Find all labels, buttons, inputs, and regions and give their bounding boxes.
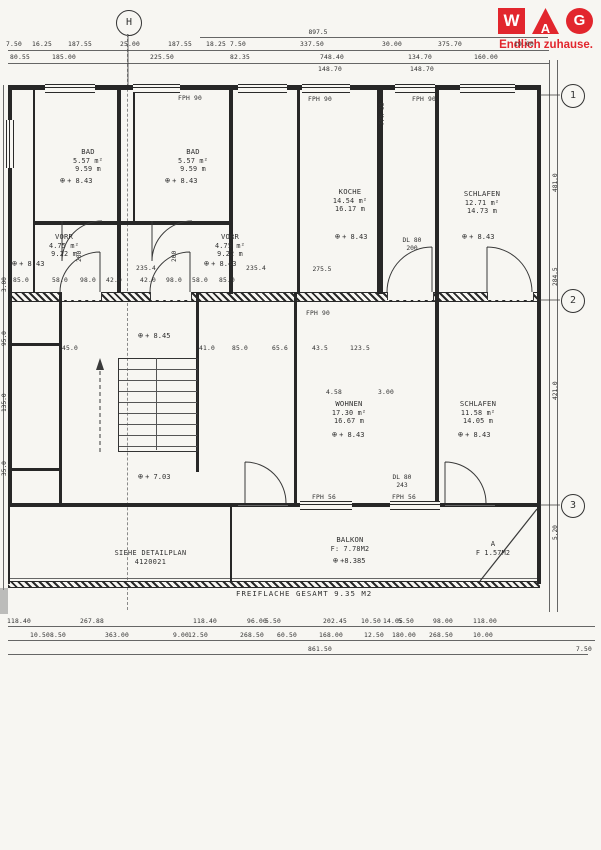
room-area: 4.75 m² (200, 242, 260, 250)
dimension-total: 897.5 (309, 29, 328, 36)
detail-plan-note-line1: SIEHE DETAILPLAN (88, 549, 213, 558)
elevation-marker-koche: ⊕+ 8.43 (335, 232, 367, 242)
dimension-value: 98.0 (166, 277, 182, 284)
freiflaeche-note: FREIFLACHE GESAMT 9.35 M2 (236, 589, 372, 598)
dimension-value: 235.4 (246, 265, 266, 272)
room-area: 4.75 m² (34, 242, 94, 250)
room-area: F: 7.78M2 (310, 545, 390, 553)
window (133, 84, 180, 93)
level-icon: ⊕ (458, 430, 463, 440)
window-tag-fph90-vertical: FPH 90 (379, 103, 386, 125)
window-tag-fph90: FPH 90 (412, 96, 436, 103)
wall-bad-divider (117, 85, 121, 293)
wall-wohnen-left (294, 292, 297, 505)
room-label-schlafen-top: SCHLAFEN 12.71 m² 14.73 m (446, 190, 518, 215)
dim-row-bottom-2: 10.508.50363.009.0012.50268.5060.50168.0… (0, 632, 601, 641)
dim-row-top-1: 7.5016.25187.5525.00187.5518.257.50337.5… (0, 41, 601, 50)
dimension-value: 118.40 (193, 618, 217, 625)
dimension-value: 268.50 (240, 632, 264, 639)
level-value: + 8.43 (339, 431, 364, 439)
elevation-marker-bad-left: ⊕+ 8.43 (60, 176, 92, 186)
room-name: WOHNEN (313, 400, 385, 409)
dimension-value: 4.58 (326, 389, 342, 396)
floor-plan-sheet: W A G Endlich zuhause. H 1 2 3 897.5 7.5… (0, 0, 601, 850)
elevation-marker-bad-right: ⊕+ 8.43 (165, 176, 197, 186)
door-height-tag: 200 (76, 251, 83, 262)
dimension-value: 82.35 (230, 54, 250, 61)
dimension-value: 12.50 (188, 632, 208, 639)
elevation-marker-balkon: ⊕+8.385 (333, 556, 365, 566)
room-area: F 1.57M2 (468, 549, 518, 557)
door-opening (487, 292, 534, 300)
room-area: 5.57 m² (52, 157, 124, 165)
dimension-value: 160.00 (474, 54, 498, 61)
balcony-door-sill (238, 505, 288, 506)
wall-stair-left (59, 292, 62, 507)
dim-row-top-3: 148.70148.70 (0, 66, 601, 75)
room-name: SCHLAFEN (446, 190, 518, 199)
dimension-value: 134.70 (408, 54, 432, 61)
dimension-value: 168.00 (319, 632, 343, 639)
level-icon: ⊕ (138, 472, 143, 482)
room-label-balkon: BALKON F: 7.78M2 (310, 536, 390, 553)
elevation-marker-wohnen: ⊕+ 8.43 (332, 430, 364, 440)
room-name: KOCHE (310, 188, 390, 197)
room-label-wohnen: WOHNEN 17.30 m² 16.67 m (313, 400, 385, 425)
elevation-marker-schlafen-top: ⊕+ 8.43 (462, 232, 494, 242)
room-perimeter: 16.67 m (313, 417, 385, 425)
logo-letter-w: W (498, 8, 525, 34)
dimension-value: 25.00 (120, 41, 140, 48)
room-label-koche: KOCHE 14.54 m² 16.17 m (310, 188, 390, 213)
elevation-marker-stair-upper: ⊕+ 8.45 (138, 331, 170, 341)
room-perimeter: 9.22 m (34, 250, 94, 258)
dimension-value: 187.55 (168, 41, 192, 48)
scan-artifact (0, 588, 8, 614)
detail-plan-note: SIEHE DETAILPLAN 4120021 (88, 549, 213, 567)
dimension-value: 118.00 (473, 618, 497, 625)
grid-axis-centerline (127, 34, 128, 610)
dimension-value: 337.50 (300, 41, 324, 48)
dimension-value: 12.50 (364, 632, 384, 639)
balcony-window (300, 501, 352, 510)
window (395, 84, 435, 93)
door-tag-fph56: FPH 56 (312, 494, 336, 501)
dim-line (8, 50, 549, 51)
balcony-parapet (8, 581, 540, 588)
room-perimeter: 14.73 m (446, 207, 518, 215)
room-perimeter: 14.05 m (442, 417, 514, 425)
dimension-value: 95.0 (1, 331, 8, 346)
dimension-value: 8.50 (50, 632, 66, 639)
room-area: 11.58 m² (442, 409, 514, 417)
room-perimeter: 9.59 m (157, 165, 229, 173)
level-icon: ⊕ (333, 556, 338, 566)
dimension-value: 10.50 (30, 632, 50, 639)
level-icon: ⊕ (165, 176, 170, 186)
dimension-value: 180.00 (392, 632, 416, 639)
dimension-value: 58.0 (192, 277, 208, 284)
dimension-value: 861.50 (308, 646, 332, 653)
door-tag-dl80-200: DL 80 200 (398, 237, 426, 253)
dimension-value: 80.55 (10, 54, 30, 61)
door-swing-overlay (0, 0, 601, 850)
door-height-tag: 200 (171, 251, 178, 262)
door-arc-balcony-schlafen (445, 462, 486, 503)
dimension-value: 65.6 (272, 345, 288, 352)
window-tag-fph90: FPH 90 (178, 95, 202, 102)
dimension-value: 85.0 (13, 277, 29, 284)
wall-left-cell-b (8, 468, 60, 471)
room-area: 17.30 m² (313, 409, 385, 417)
room-label-abstell: A F 1.57M2 (468, 540, 518, 557)
dimension-value: 225.50 (150, 54, 174, 61)
room-name: VORR (34, 233, 94, 242)
level-value: + 7.03 (145, 473, 170, 481)
room-name: A (468, 540, 518, 549)
door-width: 243 (388, 482, 416, 490)
dimension-value: 185.00 (52, 54, 76, 61)
dim-row-bottom-3: 861.507.50 (0, 646, 601, 655)
dimension-value: 42.0 (106, 277, 122, 284)
wall-schlafen-left (435, 85, 439, 505)
wall-bad-right-inner (133, 85, 135, 223)
window (238, 84, 287, 93)
wag-logo: W A G (498, 8, 593, 34)
room-perimeter: 16.17 m (310, 205, 390, 213)
window-tag-fph90: FPH 90 (308, 96, 332, 103)
window-left-wall (6, 120, 14, 168)
room-name: BAD (157, 148, 229, 157)
detail-plan-note-line2: 4120021 (88, 558, 213, 567)
dimension-value: 9.00 (173, 632, 189, 639)
level-icon: ⊕ (332, 430, 337, 440)
dimension-value: 45.0 (62, 345, 78, 352)
level-value: + 8.45 (145, 332, 170, 340)
wall-balcony-left (8, 507, 10, 584)
dimension-value: 187.55 (68, 41, 92, 48)
room-name: BALKON (310, 536, 390, 545)
dimension-value: 60.50 (277, 632, 297, 639)
dimension-value: 148.70 (318, 66, 342, 73)
room-label-vorr-left: VORR 4.75 m² 9.22 m (34, 233, 94, 258)
room-label-bad-right: BAD 5.57 m² 9.59 m (157, 148, 229, 173)
dimension-value: 748.40 (320, 54, 344, 61)
dimension-value: 7.50 (576, 646, 592, 653)
grid-axis-marker-3: 3 (561, 494, 585, 518)
dimension-value: 267.88 (80, 618, 104, 625)
staircase-midline (156, 358, 157, 450)
dimension-value: 58.0 (52, 277, 68, 284)
room-perimeter: 9.59 m (52, 165, 124, 173)
door-opening (387, 292, 434, 300)
dimension-value: 235.4 (136, 265, 156, 272)
dimension-value: 98.0 (80, 277, 96, 284)
dim-line-right (549, 60, 550, 612)
level-value: +8.385 (340, 557, 365, 565)
room-label-vorr-right: VORR 4.75 m² 9.22 m (200, 233, 260, 258)
dimension-value: 10.50 (361, 618, 381, 625)
door-tag-fph56: FPH 56 (392, 494, 416, 501)
door-arc-balcony-wohnen (245, 462, 286, 503)
dimension-value: 5.50 (265, 618, 281, 625)
dim-row-vorr: 85.058.098.042.042.098.058.085.0 (0, 277, 601, 286)
dimension-koche-width: 275.5 (313, 266, 332, 273)
dimension-value: 5.50 (398, 618, 414, 625)
dim-row-top-2: 80.55185.00225.5082.35748.40134.70160.00 (0, 54, 601, 63)
grid-axis-marker-2: 2 (561, 289, 585, 313)
dimension-value: 96.00 (247, 618, 267, 625)
window (460, 84, 515, 93)
room-label-bad-left: BAD 5.57 m² 9.59 m (52, 148, 124, 173)
dimension-value: 43.5 (312, 345, 328, 352)
stair-direction-arrowhead (96, 358, 104, 370)
door-tag-dl80-243: DL 80 243 (388, 474, 416, 490)
window-tag-fph90: FPH 90 (306, 310, 330, 317)
balcony-door-sill (445, 505, 495, 506)
dimension-value: 202.45 (323, 618, 347, 625)
dim-row-bottom-1: 118.40267.88118.4096.005.50202.4510.5014… (0, 618, 601, 627)
wall-outer-right (537, 85, 541, 584)
level-icon: ⊕ (138, 331, 143, 341)
room-name: BAD (52, 148, 124, 157)
grid-axis-marker-1: 1 (561, 84, 585, 108)
dim-row-vorr-widths: 235.4235.4 (0, 265, 601, 274)
dim-line (8, 63, 549, 64)
room-area: 14.54 m² (310, 197, 390, 205)
wall-balcony-divider (230, 507, 232, 582)
door-opening (150, 292, 192, 300)
level-value: + 8.43 (342, 233, 367, 241)
room-area: 12.71 m² (446, 199, 518, 207)
dimension-value: 30.00 (382, 41, 402, 48)
room-perimeter: 9.22 m (200, 250, 260, 258)
dimension-value: 363.00 (105, 632, 129, 639)
level-icon: ⊕ (462, 232, 467, 242)
dimension-value: 148.70 (410, 66, 434, 73)
dim-row-mid: 45.041.085.065.643.5123.5 (0, 345, 601, 354)
dimension-value: 375.70 (438, 41, 462, 48)
room-name: SCHLAFEN (442, 400, 514, 409)
dimension-value: 42.0 (140, 277, 156, 284)
level-icon: ⊕ (60, 176, 65, 186)
dimension-value: 18.25 (206, 41, 226, 48)
dimension-value: 16.25 (32, 41, 52, 48)
door-type: DL 80 (398, 237, 426, 245)
level-value: + 8.43 (469, 233, 494, 241)
logo-letter-g: G (566, 8, 593, 34)
room-area: 5.57 m² (157, 157, 229, 165)
level-value: + 8.43 (67, 177, 92, 185)
wall-koche-left (297, 85, 300, 294)
door-opening (60, 292, 102, 300)
door-width: 200 (398, 245, 426, 253)
dim-row-wohnen-top: 4.583.00 (0, 389, 601, 398)
window (302, 84, 350, 93)
room-label-schlafen-bottom: SCHLAFEN 11.58 m² 14.05 m (442, 400, 514, 425)
balcony-edge-line (8, 578, 540, 579)
dimension-value: 35.0 (1, 461, 8, 476)
elevation-marker-schlafen-bottom: ⊕+ 8.43 (458, 430, 490, 440)
dimension-value: 3.00 (378, 389, 394, 396)
dimension-value: 268.50 (429, 632, 453, 639)
dimension-value: 10.00 (473, 632, 493, 639)
dimension-value: 19.00 (514, 41, 534, 48)
level-value: + 8.43 (465, 431, 490, 439)
dimension-value: 85.0 (232, 345, 248, 352)
dimension-value: 98.00 (433, 618, 453, 625)
dimension-value: 5.20 (552, 525, 559, 540)
grid-axis-marker-h: H (116, 10, 142, 36)
elevation-marker-landing: ⊕+ 7.03 (138, 472, 170, 482)
room-name: VORR (200, 233, 260, 242)
window (45, 84, 95, 93)
level-icon: ⊕ (335, 232, 340, 242)
dimension-value: 41.0 (199, 345, 215, 352)
dim-line (200, 37, 548, 38)
dimension-value: 481.0 (552, 173, 559, 192)
level-value: + 8.43 (172, 177, 197, 185)
dimension-value: 123.5 (350, 345, 370, 352)
dimension-value: 85.0 (219, 277, 235, 284)
balcony-window (390, 501, 440, 510)
staircase (118, 358, 198, 452)
dimension-value: 7.50 (230, 41, 246, 48)
dimension-value: 118.40 (7, 618, 31, 625)
door-type: DL 80 (388, 474, 416, 482)
